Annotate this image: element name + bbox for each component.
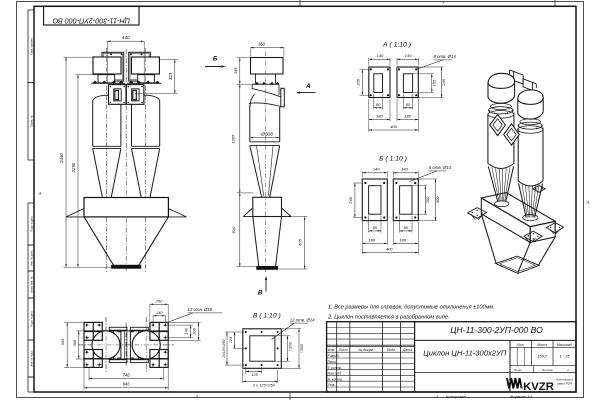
svg-text:Копировал: Копировал bbox=[446, 394, 467, 399]
svg-text:200: 200 bbox=[425, 196, 430, 204]
svg-text:125: 125 bbox=[251, 372, 258, 377]
svg-text:Изм.: Изм. bbox=[328, 348, 335, 352]
svg-text:А ( 1:10 ): А ( 1:10 ) bbox=[382, 42, 411, 49]
svg-text:Листов: Листов bbox=[540, 368, 553, 372]
svg-text:400: 400 bbox=[390, 124, 397, 129]
svg-text:KVZR: KVZR bbox=[523, 381, 554, 393]
svg-text:2290: 2290 bbox=[71, 162, 76, 173]
svg-text:260: 260 bbox=[348, 196, 353, 204]
svg-text:165: 165 bbox=[432, 79, 437, 86]
svg-text:Б: Б bbox=[213, 56, 218, 63]
svg-text:125: 125 bbox=[229, 336, 233, 343]
svg-text:323: 323 bbox=[168, 72, 173, 80]
svg-text:159,7: 159,7 bbox=[537, 354, 548, 359]
svg-text:Дата: Дата bbox=[402, 348, 412, 352]
svg-text:Масса: Масса bbox=[537, 343, 547, 347]
svg-text:Лит.: Лит. bbox=[516, 343, 525, 347]
svg-text:140: 140 bbox=[405, 53, 412, 58]
svg-text:80: 80 bbox=[376, 102, 381, 107]
svg-text:Разраб.: Разраб. bbox=[328, 354, 340, 358]
svg-text:200: 200 bbox=[155, 298, 163, 303]
svg-text:440: 440 bbox=[122, 35, 130, 40]
svg-text:□200: □200 bbox=[287, 341, 292, 351]
svg-text:Масштаб: Масштаб bbox=[557, 343, 572, 347]
svg-text:1: 1 bbox=[567, 368, 569, 372]
svg-text:Циклон ЦН-11-300х2УП: Циклон ЦН-11-300х2УП bbox=[423, 348, 507, 357]
svg-text:Взам. инв. №: Взам. инв. № bbox=[29, 276, 33, 292]
svg-text:А: А bbox=[305, 83, 311, 90]
svg-text:360: 360 bbox=[258, 41, 266, 46]
svg-text:300: 300 bbox=[435, 196, 440, 203]
svg-text:1285: 1285 bbox=[230, 134, 235, 144]
svg-text:2440: 2440 bbox=[59, 153, 64, 164]
svg-text:12 отв. Ø14: 12 отв. Ø14 bbox=[290, 317, 315, 322]
svg-text:205: 205 bbox=[355, 78, 360, 86]
svg-text:80: 80 bbox=[373, 225, 378, 230]
svg-text:ЦН-11-300-2УП-000 ВО: ЦН-11-300-2УП-000 ВО bbox=[450, 325, 543, 335]
svg-text:□300: □300 bbox=[299, 343, 304, 353]
svg-text:№ докум.: № докум. bbox=[359, 348, 374, 352]
svg-text:2. Циклон поставляется в разо: 2. Циклон поставляется в разобранном вид… bbox=[327, 315, 450, 321]
svg-text:140: 140 bbox=[401, 167, 408, 172]
svg-text:Нач.отд.: Нач.отд. bbox=[328, 372, 342, 376]
svg-text:Инв. № подл.: Инв. № подл. bbox=[29, 350, 33, 366]
svg-text:В ( 1:10 ): В ( 1:10 ) bbox=[253, 313, 281, 320]
svg-text:Формат А3: Формат А3 bbox=[510, 394, 533, 399]
svg-text:Котельный: Котельный bbox=[556, 377, 573, 381]
svg-text:400: 400 bbox=[386, 247, 393, 252]
svg-text:завод РЭП: завод РЭП bbox=[556, 382, 573, 386]
svg-text:Лист: Лист bbox=[513, 368, 522, 372]
svg-text:180: 180 bbox=[368, 237, 375, 242]
svg-text:80: 80 bbox=[404, 225, 409, 230]
svg-text:Лист: Лист bbox=[338, 348, 348, 352]
svg-text:Подп. и дата: Подп. и дата bbox=[29, 216, 33, 232]
svg-text:200: 200 bbox=[191, 327, 196, 335]
svg-text:80: 80 bbox=[406, 102, 411, 107]
svg-text:345: 345 bbox=[233, 67, 238, 74]
svg-text:2x125=250: 2x125=250 bbox=[222, 340, 226, 359]
svg-text:306: 306 bbox=[72, 339, 77, 346]
svg-text:8 отв. Ø14: 8 отв. Ø14 bbox=[434, 54, 457, 59]
svg-text:180: 180 bbox=[376, 114, 383, 119]
svg-text:Т. контр.: Т. контр. bbox=[328, 366, 343, 370]
svg-text:1. Все размеры для справок, д: 1. Все размеры для справок, допустимые о… bbox=[328, 304, 495, 310]
svg-text:2 x 125=250: 2 x 125=250 bbox=[252, 382, 276, 387]
svg-text:140: 140 bbox=[377, 53, 384, 58]
svg-text:180: 180 bbox=[399, 237, 406, 242]
svg-text:Подп.: Подп. bbox=[387, 348, 396, 352]
svg-text:Н. контр.: Н. контр. bbox=[328, 377, 343, 381]
svg-text:140: 140 bbox=[156, 310, 163, 315]
svg-text:1 : 15: 1 : 15 bbox=[559, 354, 570, 359]
svg-text:140: 140 bbox=[184, 327, 189, 334]
svg-text:6 отв. Ø14: 6 отв. Ø14 bbox=[429, 165, 452, 170]
svg-text:А: А bbox=[37, 191, 41, 196]
svg-text:Утв.: Утв. bbox=[328, 383, 336, 387]
svg-text:506: 506 bbox=[60, 338, 65, 345]
svg-text:1: 1 bbox=[436, 395, 438, 399]
svg-text:605: 605 bbox=[297, 238, 302, 245]
svg-text:Инв. № дубл.: Инв. № дубл. bbox=[29, 250, 33, 266]
svg-text:Перв. примен.: Перв. примен. bbox=[29, 37, 33, 55]
svg-text:946: 946 bbox=[123, 382, 131, 387]
svg-text:180: 180 bbox=[404, 114, 411, 119]
svg-text:810: 810 bbox=[231, 226, 236, 233]
svg-text:Пров.: Пров. bbox=[328, 360, 337, 364]
svg-text:А: А bbox=[585, 200, 589, 205]
svg-text:Ø308: Ø308 bbox=[260, 132, 273, 138]
svg-text:140: 140 bbox=[373, 167, 380, 172]
svg-text:Справ. №: Справ. № bbox=[29, 115, 33, 127]
svg-text:Подп. и дата: Подп. и дата bbox=[29, 311, 33, 327]
svg-text:ЦН-11-300-2УП-000 ВО: ЦН-11-300-2УП-000 ВО bbox=[52, 17, 130, 26]
svg-text:В: В bbox=[258, 290, 263, 297]
svg-text:12 отв. Ø18: 12 отв. Ø18 bbox=[188, 307, 213, 312]
svg-text:245: 245 bbox=[441, 78, 446, 86]
svg-text:Б ( 1:10 ): Б ( 1:10 ) bbox=[379, 156, 407, 163]
svg-text:746: 746 bbox=[123, 373, 131, 378]
